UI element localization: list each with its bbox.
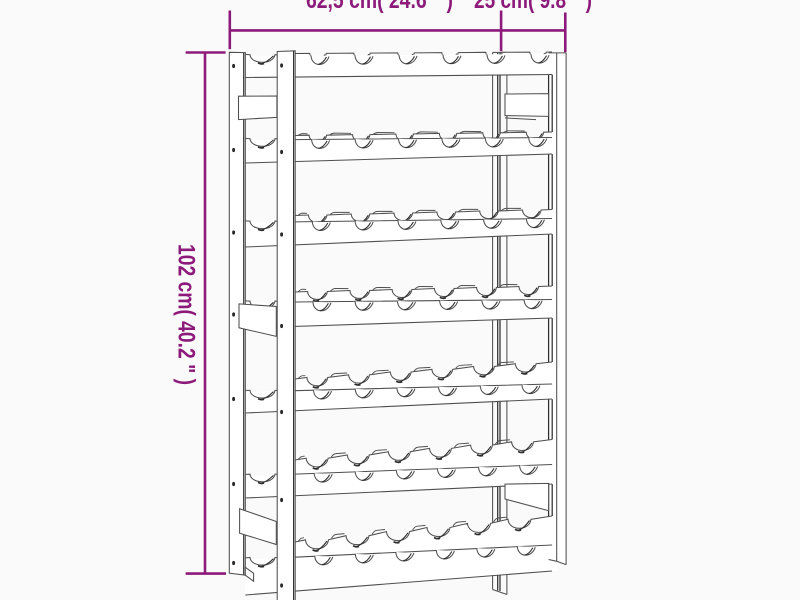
svg-text:62,5 cm( 24.6 " ): 62,5 cm( 24.6 " ) [306,0,453,14]
svg-text:102 cm( 40.2 " ): 102 cm( 40.2 " ) [173,244,200,385]
svg-text:25 cm( 9.8 " ): 25 cm( 9.8 " ) [474,0,592,14]
